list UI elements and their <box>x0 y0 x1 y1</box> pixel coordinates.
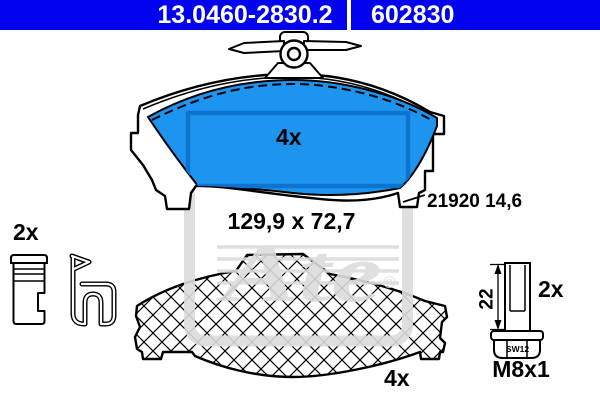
watermark-brand-script: Ate <box>215 227 382 320</box>
clip-right-blade <box>304 41 361 50</box>
bolt-shank <box>505 263 530 331</box>
clip-grommet-inner <box>288 48 300 60</box>
clips-quantity-label: 2x <box>13 219 39 246</box>
bolt-flange <box>491 331 543 340</box>
bolt-thread-label: M8x1 <box>486 356 556 383</box>
watermark-registered-icon: ® <box>383 273 396 292</box>
pad-back-quantity-label: 4x <box>276 124 302 151</box>
sleeve-body <box>14 263 45 324</box>
retainer-sleeve-drawing <box>11 255 47 324</box>
catalog-diagram-page: 13.0460-2830.2 602830 Ate ® <box>0 0 600 400</box>
wva-thickness-label: 21920 14,6 <box>427 191 522 213</box>
bolt-wrench-size-label: SW12 <box>504 344 531 354</box>
dimension-arrow-up-icon <box>495 264 502 274</box>
pad-back-view-drawing <box>131 32 444 209</box>
spring-clip-wire-inner <box>72 256 114 324</box>
pad-front-quantity-label: 4x <box>384 365 410 392</box>
wear-indicator-clip <box>229 32 361 78</box>
clip-left-blade <box>229 41 284 53</box>
bolt-quantity-label: 2x <box>538 276 564 303</box>
sleeve-cap <box>11 255 47 263</box>
bolt-length-label: 22 <box>477 288 499 309</box>
pad-dimensions-label: 129,9 x 72,7 <box>204 208 379 235</box>
dimension-arrow-down-icon <box>495 320 502 330</box>
spring-clip-drawing <box>72 256 114 324</box>
